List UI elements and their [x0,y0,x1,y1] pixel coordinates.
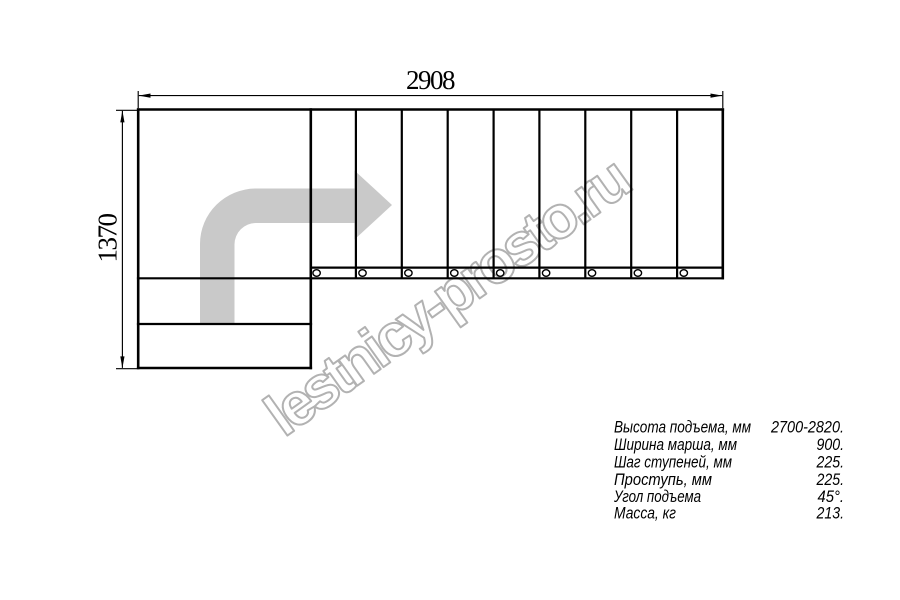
svg-text:Шаг ступеней, мм: Шаг ступеней, мм [614,454,732,472]
svg-text:Проступь, мм: Проступь, мм [614,471,712,489]
svg-text:45°.: 45°. [818,488,845,506]
svg-text:900.: 900. [817,436,845,454]
svg-text:Высота подъема, мм: Высота подъема, мм [614,419,751,437]
svg-text:Масса, кг: Масса, кг [614,504,676,522]
svg-text:225.: 225. [816,454,844,472]
svg-text:2908: 2908 [406,65,455,95]
svg-text:1370: 1370 [93,214,123,263]
svg-text:Угол подъема: Угол подъема [613,488,701,506]
svg-text:213.: 213. [816,504,844,522]
svg-text:225.: 225. [816,471,844,489]
svg-text:Ширина марша, мм: Ширина марша, мм [614,436,737,454]
svg-text:2700-2820.: 2700-2820. [770,419,844,437]
